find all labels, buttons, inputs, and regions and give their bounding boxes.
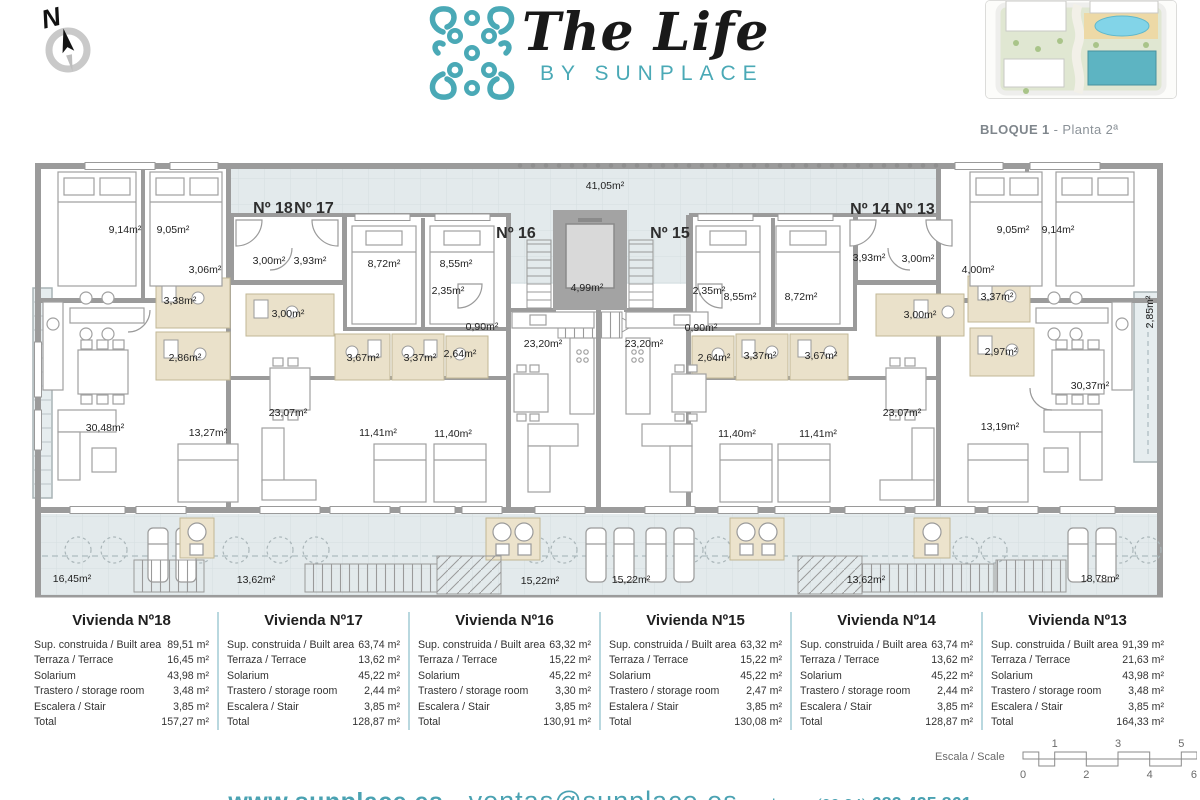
- area-row-label: Total: [991, 715, 1013, 730]
- vivienda-card: Vivienda Nº18Sup. construida / Built are…: [26, 612, 217, 730]
- area-row-value: 45,22 m²: [931, 669, 973, 684]
- area-row-value: 128,87 m²: [925, 715, 973, 730]
- vivienda-title: Vivienda Nº16: [418, 612, 591, 629]
- vivienda-area-row: Sup. construida / Built area63,32 m²: [418, 638, 591, 653]
- area-row-value: 89,51 m²: [167, 638, 209, 653]
- vivienda-area-tables: Vivienda Nº18Sup. construida / Built are…: [26, 612, 1174, 730]
- vivienda-area-row: Sup. construida / Built area63,32 m²: [609, 638, 782, 653]
- area-row-value: 13,62 m²: [931, 653, 973, 668]
- area-row-label: Terraza / Terrace: [227, 653, 306, 668]
- area-row-label: Terraza / Terrace: [34, 653, 113, 668]
- area-row-label: Trastero / storage room: [227, 684, 337, 699]
- area-row-value: 63,74 m²: [931, 638, 973, 653]
- vivienda-area-row: Terraza / Terrace15,22 m²: [418, 653, 591, 668]
- vivienda-area-row: Total157,27 m²: [34, 715, 209, 730]
- area-row-label: Escalera / Stair: [991, 700, 1063, 715]
- area-row-value: 128,87 m²: [352, 715, 400, 730]
- area-row-label: Sup. construida / Built area: [800, 638, 927, 653]
- scale-tick: 3: [1115, 738, 1121, 750]
- area-row-value: 43,98 m²: [1122, 669, 1164, 684]
- vivienda-card: Vivienda Nº15Sup. construida / Built are…: [599, 612, 790, 730]
- area-row-label: Estalera / Stair: [609, 700, 678, 715]
- vivienda-area-row: Trastero / storage room3,48 m²: [991, 684, 1164, 699]
- area-row-value: 63,74 m²: [358, 638, 400, 653]
- vivienda-area-row: Sup. construida / Built area89,51 m²: [34, 638, 209, 653]
- area-row-value: 63,32 m²: [549, 638, 591, 653]
- logo: The Life BY SUNPLACE: [424, 0, 784, 110]
- vivienda-area-row: Terraza / Terrace16,45 m²: [34, 653, 209, 668]
- area-row-value: 3,85 m²: [364, 700, 400, 715]
- area-row-value: 2,44 m²: [364, 684, 400, 699]
- footer: www.sunplace.es-ventas@sunplace.es-phone…: [0, 779, 1200, 800]
- area-row-value: 2,44 m²: [937, 684, 973, 699]
- vivienda-area-row: Total130,91 m²: [418, 715, 591, 730]
- area-row-value: 16,45 m²: [167, 653, 209, 668]
- area-row-label: Solarium: [991, 669, 1033, 684]
- area-row-label: Terraza / Terrace: [800, 653, 879, 668]
- vivienda-area-row: Escalera / Stair3,85 m²: [800, 700, 973, 715]
- vivienda-area-row: Solarium45,22 m²: [418, 669, 591, 684]
- vivienda-area-row: Estalera / Stair3,85 m²: [609, 700, 782, 715]
- vivienda-area-row: Trastero / storage room2,44 m²: [227, 684, 400, 699]
- vivienda-area-row: Trastero / storage room2,47 m²: [609, 684, 782, 699]
- logo-knot-icon: [424, 0, 520, 106]
- scale-tick: 5: [1178, 738, 1184, 750]
- vivienda-area-row: Solarium45,22 m²: [609, 669, 782, 684]
- vivienda-area-row: Solarium45,22 m²: [227, 669, 400, 684]
- area-row-value: 157,27 m²: [161, 715, 209, 730]
- vivienda-area-row: Terraza / Terrace13,62 m²: [227, 653, 400, 668]
- page: N: [0, 0, 1200, 800]
- area-row-label: Trastero / storage room: [991, 684, 1101, 699]
- area-row-value: 45,22 m²: [358, 669, 400, 684]
- scale-label: Escala / Scale: [935, 751, 1005, 763]
- area-row-label: Solarium: [418, 669, 460, 684]
- vivienda-area-row: Solarium43,98 m²: [991, 669, 1164, 684]
- vivienda-area-row: Total130,08 m²: [609, 715, 782, 730]
- area-row-value: 3,30 m²: [555, 684, 591, 699]
- area-row-label: Trastero / storage room: [609, 684, 719, 699]
- vivienda-area-row: Total164,33 m²: [991, 715, 1164, 730]
- area-row-value: 15,22 m²: [549, 653, 591, 668]
- vivienda-area-row: Terraza / Terrace15,22 m²: [609, 653, 782, 668]
- siteplan-caption-bold: BLOQUE 1: [980, 122, 1050, 137]
- area-row-value: 3,48 m²: [1128, 684, 1164, 699]
- logo-subtitle: BY SUNPLACE: [540, 62, 764, 86]
- area-row-label: Terraza / Terrace: [418, 653, 497, 668]
- area-row-label: Sup. construida / Built area: [991, 638, 1118, 653]
- area-row-label: Escalera / Stair: [418, 700, 490, 715]
- area-row-value: 2,47 m²: [746, 684, 782, 699]
- vivienda-area-row: Sup. construida / Built area91,39 m²: [991, 638, 1164, 653]
- area-row-label: Total: [34, 715, 56, 730]
- vivienda-area-row: Terraza / Terrace21,63 m²: [991, 653, 1164, 668]
- area-row-value: 45,22 m²: [740, 669, 782, 684]
- vivienda-area-row: Sup. construida / Built area63,74 m²: [227, 638, 400, 653]
- area-row-value: 3,85 m²: [555, 700, 591, 715]
- area-row-value: 21,63 m²: [1122, 653, 1164, 668]
- vivienda-title: Vivienda Nº17: [227, 612, 400, 629]
- vivienda-card: Vivienda Nº16Sup. construida / Built are…: [408, 612, 599, 730]
- vivienda-area-row: Escalera / Stair3,85 m²: [991, 700, 1164, 715]
- vivienda-card: Vivienda Nº13Sup. construida / Built are…: [981, 612, 1172, 730]
- siteplan-caption-rest: - Planta 2ª: [1050, 122, 1119, 137]
- compass-icon: N: [22, 2, 106, 86]
- area-row-label: Escalera / Stair: [227, 700, 299, 715]
- vivienda-area-row: Escalera / Stair3,85 m²: [418, 700, 591, 715]
- area-row-value: 45,22 m²: [549, 669, 591, 684]
- vivienda-area-row: Escalera / Stair3,85 m²: [227, 700, 400, 715]
- vivienda-area-row: Solarium43,98 m²: [34, 669, 209, 684]
- area-row-value: 15,22 m²: [740, 653, 782, 668]
- area-row-label: Sup. construida / Built area: [34, 638, 161, 653]
- vivienda-title: Vivienda Nº14: [800, 612, 973, 629]
- vivienda-area-row: Escalera / Stair3,85 m²: [34, 700, 209, 715]
- area-row-value: 164,33 m²: [1116, 715, 1164, 730]
- area-row-value: 63,32 m²: [740, 638, 782, 653]
- area-row-value: 3,85 m²: [1128, 700, 1164, 715]
- siteplan-caption: BLOQUE 1 - Planta 2ª: [980, 122, 1119, 137]
- siteplan-thumbnail: [985, 0, 1177, 99]
- area-row-label: Total: [609, 715, 631, 730]
- vivienda-area-row: Trastero / storage room2,44 m²: [800, 684, 973, 699]
- area-row-value: 91,39 m²: [1122, 638, 1164, 653]
- area-row-value: 43,98 m²: [167, 669, 209, 684]
- vivienda-area-row: Total128,87 m²: [227, 715, 400, 730]
- area-row-label: Sup. construida / Built area: [227, 638, 354, 653]
- vivienda-area-row: Trastero / storage room3,30 m²: [418, 684, 591, 699]
- area-row-label: Terraza / Terrace: [991, 653, 1070, 668]
- scale-tick: 1: [1052, 738, 1058, 750]
- area-row-label: Escalera / Stair: [800, 700, 872, 715]
- area-row-label: Escalera / Stair: [34, 700, 106, 715]
- vivienda-title: Vivienda Nº18: [34, 612, 209, 629]
- area-row-value: 3,85 m²: [173, 700, 209, 715]
- area-row-label: Trastero / storage room: [800, 684, 910, 699]
- vivienda-title: Vivienda Nº13: [991, 612, 1164, 629]
- footer-phone-number: 682 425 861: [872, 794, 972, 800]
- area-row-value: 13,62 m²: [358, 653, 400, 668]
- vivienda-card: Vivienda Nº17Sup. construida / Built are…: [217, 612, 408, 730]
- footer-email-link[interactable]: ventas@sunplace.es: [469, 786, 738, 800]
- scale-bar: Escala / Scale 1 3 5 0 2 4 6: [935, 736, 1197, 780]
- area-row-label: Trastero / storage room: [34, 684, 144, 699]
- area-row-label: Solarium: [34, 669, 76, 684]
- vivienda-area-row: Solarium45,22 m²: [800, 669, 973, 684]
- area-row-label: Terraza / Terrace: [609, 653, 688, 668]
- area-row-value: 130,91 m²: [543, 715, 591, 730]
- area-row-label: Solarium: [227, 669, 269, 684]
- logo-title: The Life: [522, 2, 769, 63]
- area-row-value: 3,48 m²: [173, 684, 209, 699]
- area-row-label: Trastero / storage room: [418, 684, 528, 699]
- area-row-label: Total: [418, 715, 440, 730]
- vivienda-area-row: Sup. construida / Built area63,74 m²: [800, 638, 973, 653]
- area-row-value: 3,85 m²: [746, 700, 782, 715]
- vivienda-card: Vivienda Nº14Sup. construida / Built are…: [790, 612, 981, 730]
- area-row-label: Sup. construida / Built area: [418, 638, 545, 653]
- area-row-label: Solarium: [609, 669, 651, 684]
- area-row-label: Total: [800, 715, 822, 730]
- area-row-label: Sup. construida / Built area: [609, 638, 736, 653]
- vivienda-area-row: Terraza / Terrace13,62 m²: [800, 653, 973, 668]
- area-row-label: Total: [227, 715, 249, 730]
- floorplan-drawing: [30, 152, 1170, 604]
- vivienda-title: Vivienda Nº15: [609, 612, 782, 629]
- vivienda-area-row: Total128,87 m²: [800, 715, 973, 730]
- area-row-label: Solarium: [800, 669, 842, 684]
- area-row-value: 130,08 m²: [734, 715, 782, 730]
- footer-website-link[interactable]: www.sunplace.es: [228, 788, 443, 800]
- area-row-value: 3,85 m²: [937, 700, 973, 715]
- vivienda-area-row: Trastero / storage room3,48 m²: [34, 684, 209, 699]
